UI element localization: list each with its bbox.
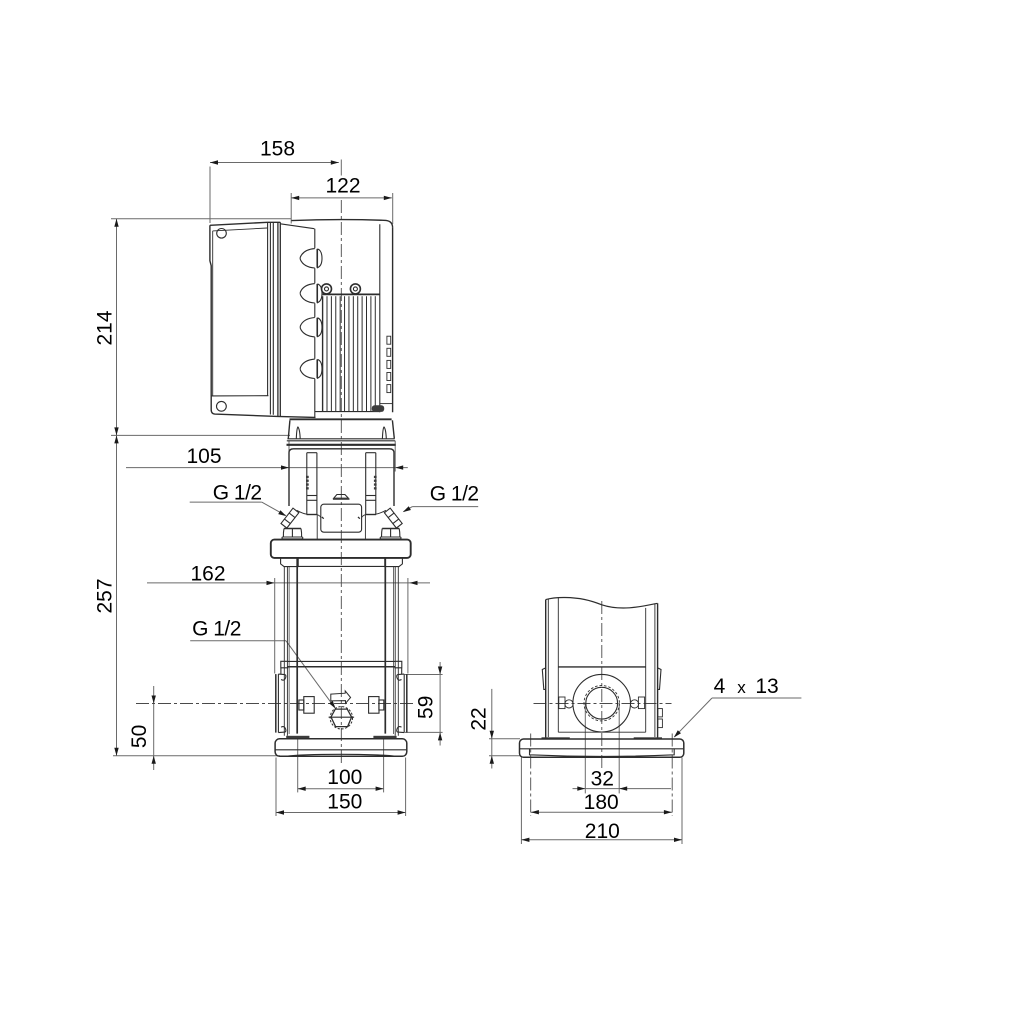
svg-text:50: 50 (128, 725, 151, 748)
svg-text:32: 32 (591, 768, 614, 791)
svg-text:150: 150 (327, 790, 362, 813)
svg-text:180: 180 (584, 791, 619, 814)
svg-text:G 1/2: G 1/2 (213, 482, 262, 505)
svg-text:G 1/2: G 1/2 (192, 618, 241, 641)
svg-text:214: 214 (94, 310, 117, 345)
svg-text:162: 162 (190, 562, 225, 585)
svg-text:100: 100 (327, 766, 362, 789)
svg-text:59: 59 (415, 696, 438, 719)
svg-text:x: x (737, 678, 746, 697)
svg-text:105: 105 (186, 445, 221, 468)
svg-text:4: 4 (714, 675, 726, 698)
svg-text:257: 257 (94, 578, 117, 613)
svg-text:210: 210 (585, 820, 620, 843)
svg-text:158: 158 (260, 138, 295, 161)
svg-text:G 1/2: G 1/2 (430, 483, 479, 506)
svg-text:13: 13 (755, 675, 778, 698)
svg-text:22: 22 (468, 707, 491, 730)
svg-text:122: 122 (325, 175, 360, 198)
